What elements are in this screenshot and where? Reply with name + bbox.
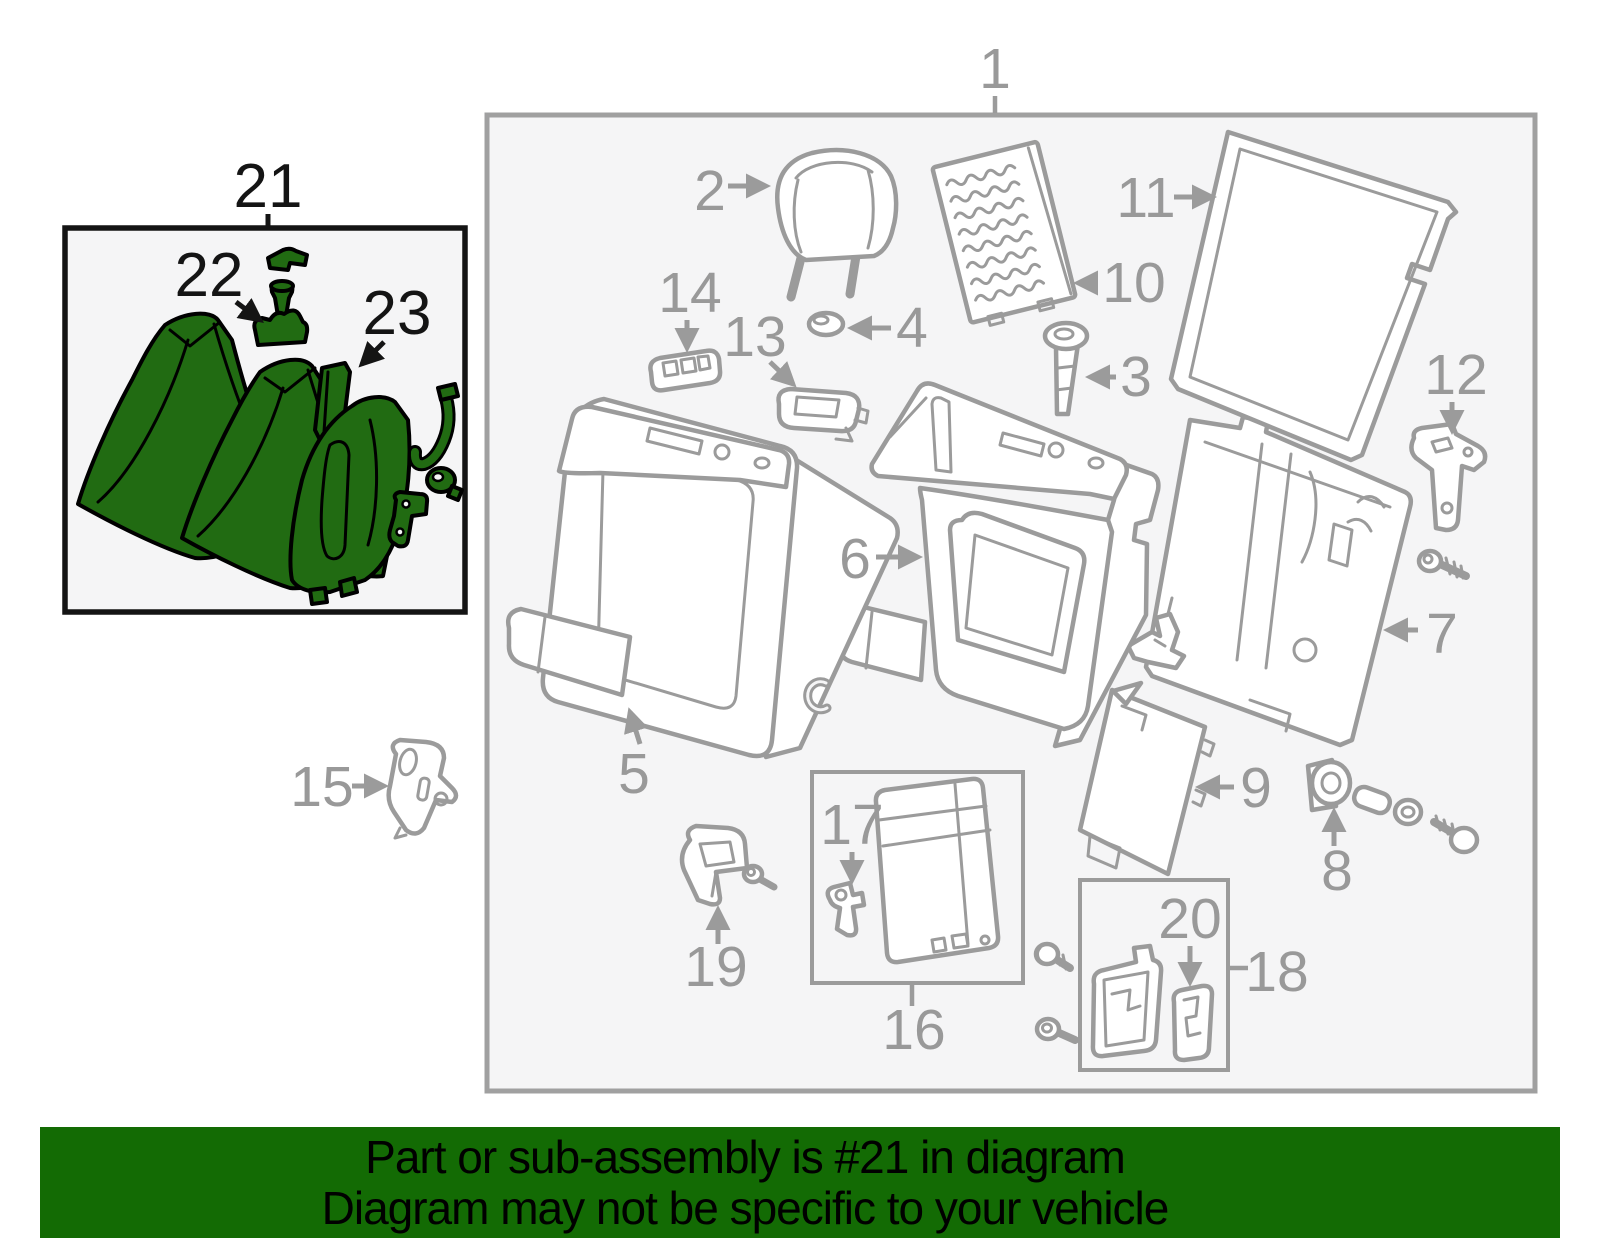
part-17-label: 17 — [820, 793, 883, 857]
part-3-label: 3 — [1120, 345, 1152, 409]
part-14-outline — [650, 351, 720, 391]
part-4-grommet — [809, 313, 843, 335]
hook-tab — [438, 384, 458, 400]
part-15-outline — [389, 740, 456, 834]
part-3-head — [1045, 323, 1087, 349]
part-14-bezel — [650, 351, 720, 391]
part-16-label: 16 — [882, 998, 945, 1062]
part-4-label: 4 — [896, 296, 928, 360]
part-7-label: 7 — [1426, 602, 1458, 666]
part-22-label: 22 — [175, 241, 244, 310]
part-2-label: 2 — [694, 159, 726, 223]
part-10-label: 10 — [1102, 251, 1165, 315]
screw-head — [1037, 1019, 1059, 1039]
part-15-label: 15 — [290, 755, 353, 819]
washer — [1395, 800, 1421, 824]
part-13-label: 13 — [723, 305, 786, 369]
part-5-label: 5 — [618, 742, 650, 806]
banner-line-2: Diagram may not be specific to your vehi… — [322, 1183, 1169, 1234]
ring — [1312, 762, 1350, 804]
part-13-outline — [779, 389, 860, 431]
part-15-bracket — [389, 740, 456, 838]
grommet-tab — [448, 486, 462, 500]
part-20-right-handle — [1174, 986, 1212, 1060]
part-9-label: 9 — [1240, 756, 1272, 820]
part-23-label: 23 — [363, 279, 432, 348]
pin-head — [271, 281, 293, 291]
part-11-label: 11 — [1116, 166, 1175, 230]
parts-diagram-page: 1 — [0, 0, 1600, 1249]
part-6-label: 6 — [839, 527, 871, 591]
part-20-label: 20 — [1158, 887, 1221, 951]
banner-line-1: Part or sub-assembly is #21 in diagram — [365, 1132, 1125, 1183]
part-8-label: 8 — [1321, 839, 1353, 903]
headrest-post — [850, 256, 856, 294]
part-12-label: 12 — [1424, 343, 1487, 407]
grommet-hole — [433, 473, 443, 481]
part-18-label: 18 — [1245, 940, 1308, 1004]
part-19-label: 19 — [684, 935, 747, 999]
part-18-subassembly-box: 20 — [1080, 880, 1248, 1070]
part-1-label: 1 — [979, 37, 1011, 101]
detail — [397, 529, 404, 536]
part-16-subassembly-box: 17 — [812, 772, 1023, 1006]
part-21-label: 21 — [234, 152, 303, 221]
parts-diagram-canvas: 1 — [0, 0, 1600, 1249]
part-14-label: 14 — [658, 261, 721, 325]
detail — [403, 501, 410, 508]
highlight-banner: Part or sub-assembly is #21 in diagram D… — [40, 1127, 1560, 1238]
bolt-head — [1451, 828, 1477, 852]
